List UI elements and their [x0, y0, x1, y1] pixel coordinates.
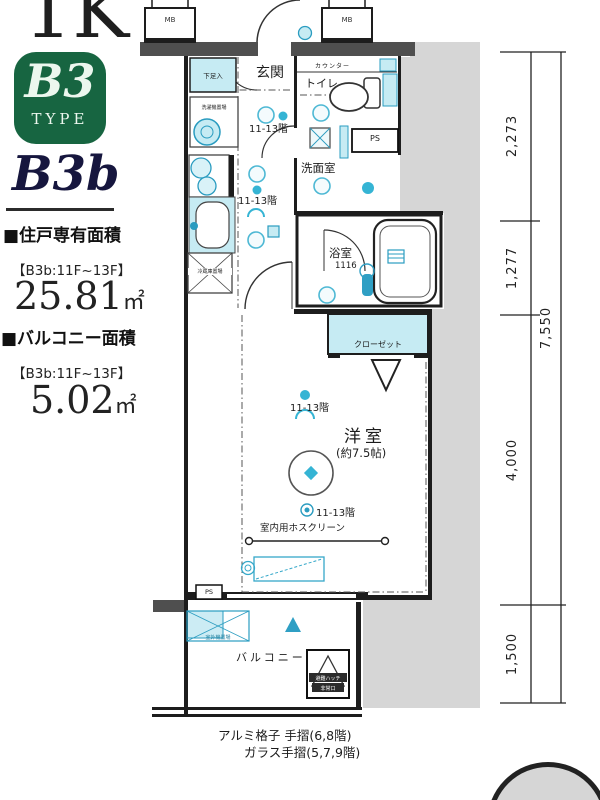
plan-name: 1K [24, 0, 129, 55]
floor-note-3: 11-13階 [290, 399, 329, 414]
shoe-box-label: 下足入 [190, 70, 236, 80]
room-size-label: (約7.5帖) [336, 445, 386, 461]
type-badge: B3 TYPE [14, 52, 106, 144]
balcony-area-heading: ■バルコニー面積 [1, 324, 136, 349]
balcony-label: バルコニー [236, 649, 306, 665]
doorbell-icon [299, 27, 312, 40]
bathroom-label: 浴室 [329, 245, 352, 261]
washroom-label: 洗面室 [301, 160, 336, 176]
exclusive-area-heading: ■住戸専有面積 [3, 221, 121, 246]
folding-door-icon [372, 360, 400, 390]
bathtub [374, 220, 436, 303]
variant-underline [6, 208, 114, 211]
triangle-marker-icon [285, 617, 301, 632]
floor-note-2: 11-13階 [238, 192, 277, 207]
downlight-icon [313, 105, 329, 121]
pipe-space-label-2: PS [196, 588, 222, 596]
outdoor-unit-label: 室外機置場 [188, 634, 248, 641]
hatch-label-2: 非常口 [312, 685, 344, 692]
mb-label-2: MB [322, 16, 372, 24]
switch-panel [268, 226, 279, 237]
toilet-label: トイレ [305, 75, 338, 91]
hoscreen-shape [246, 538, 389, 545]
dimension-7550: 7,550 [540, 288, 554, 368]
washer-label: 洗濯機置場 [191, 104, 237, 111]
hatch-label-1: 避難ハッチ [309, 675, 347, 682]
burner-icon [198, 177, 216, 195]
fridge-label: 冷蔵庫置場 [188, 268, 232, 275]
balcony-area-number: 5.02 [30, 378, 115, 422]
cabinet [383, 74, 397, 106]
downlight-icon [314, 178, 330, 194]
variant-name: B3b [12, 146, 120, 202]
faucet-icon [190, 222, 198, 230]
floor-note-1: 11-13階 [249, 120, 288, 135]
bath-window [388, 250, 404, 263]
closet-shape [328, 314, 428, 390]
burner-icon [191, 158, 211, 178]
balcony-area-unit: ㎡ [115, 394, 137, 419]
exclusive-area-unit: ㎡ [123, 290, 145, 315]
type-badge-code: B3 [14, 52, 106, 110]
sink [196, 202, 229, 248]
balcony-area-value: 5.02㎡ [30, 378, 137, 422]
downlight-icon [319, 287, 335, 303]
half-ring-icon [248, 209, 264, 217]
toilet-shelf-label: カウンター [315, 61, 350, 70]
downlight-icon [248, 232, 264, 248]
exclusive-area-value: 25.81㎡ [14, 274, 145, 318]
room-label: 洋室 [344, 422, 386, 447]
ac-unit-shape [242, 557, 325, 581]
exclusive-area-number: 25.81 [14, 274, 123, 318]
closet-label: クローゼット [330, 339, 426, 350]
type-badge-label: TYPE [14, 110, 106, 128]
dimension-4000: 4,000 [506, 420, 520, 500]
dimension-1500: 1,500 [506, 614, 520, 694]
hoscreen-label: 室内用ホスクリーン [260, 520, 345, 534]
bathroom-size-label: 1116 [335, 261, 357, 271]
hall-door-arc [245, 262, 292, 309]
mb-label-1: MB [145, 16, 195, 24]
floorplan-page: 1K B3 TYPE B3b ■住戸専有面積 【B3b:11F~13F】 25.… [0, 0, 600, 800]
entrance-door-arc [257, 0, 300, 42]
floor-note-4: 11-13階 [316, 504, 355, 519]
entrance-label: 玄関 [256, 62, 284, 82]
toilet-shelf-box [380, 59, 396, 71]
handrail-note-2: ガラス手摺(5,7,9階) [244, 742, 360, 761]
dimension-2273: 2,273 [506, 96, 520, 176]
dimension-1277: 1,277 [506, 228, 520, 308]
fixture-dot [362, 182, 374, 194]
washer-drum-icon [194, 119, 220, 145]
sliding-door [340, 126, 348, 158]
downlight-icon [249, 166, 265, 182]
pipe-space-label: PS [352, 134, 398, 143]
kitchen-fixtures [188, 58, 238, 293]
